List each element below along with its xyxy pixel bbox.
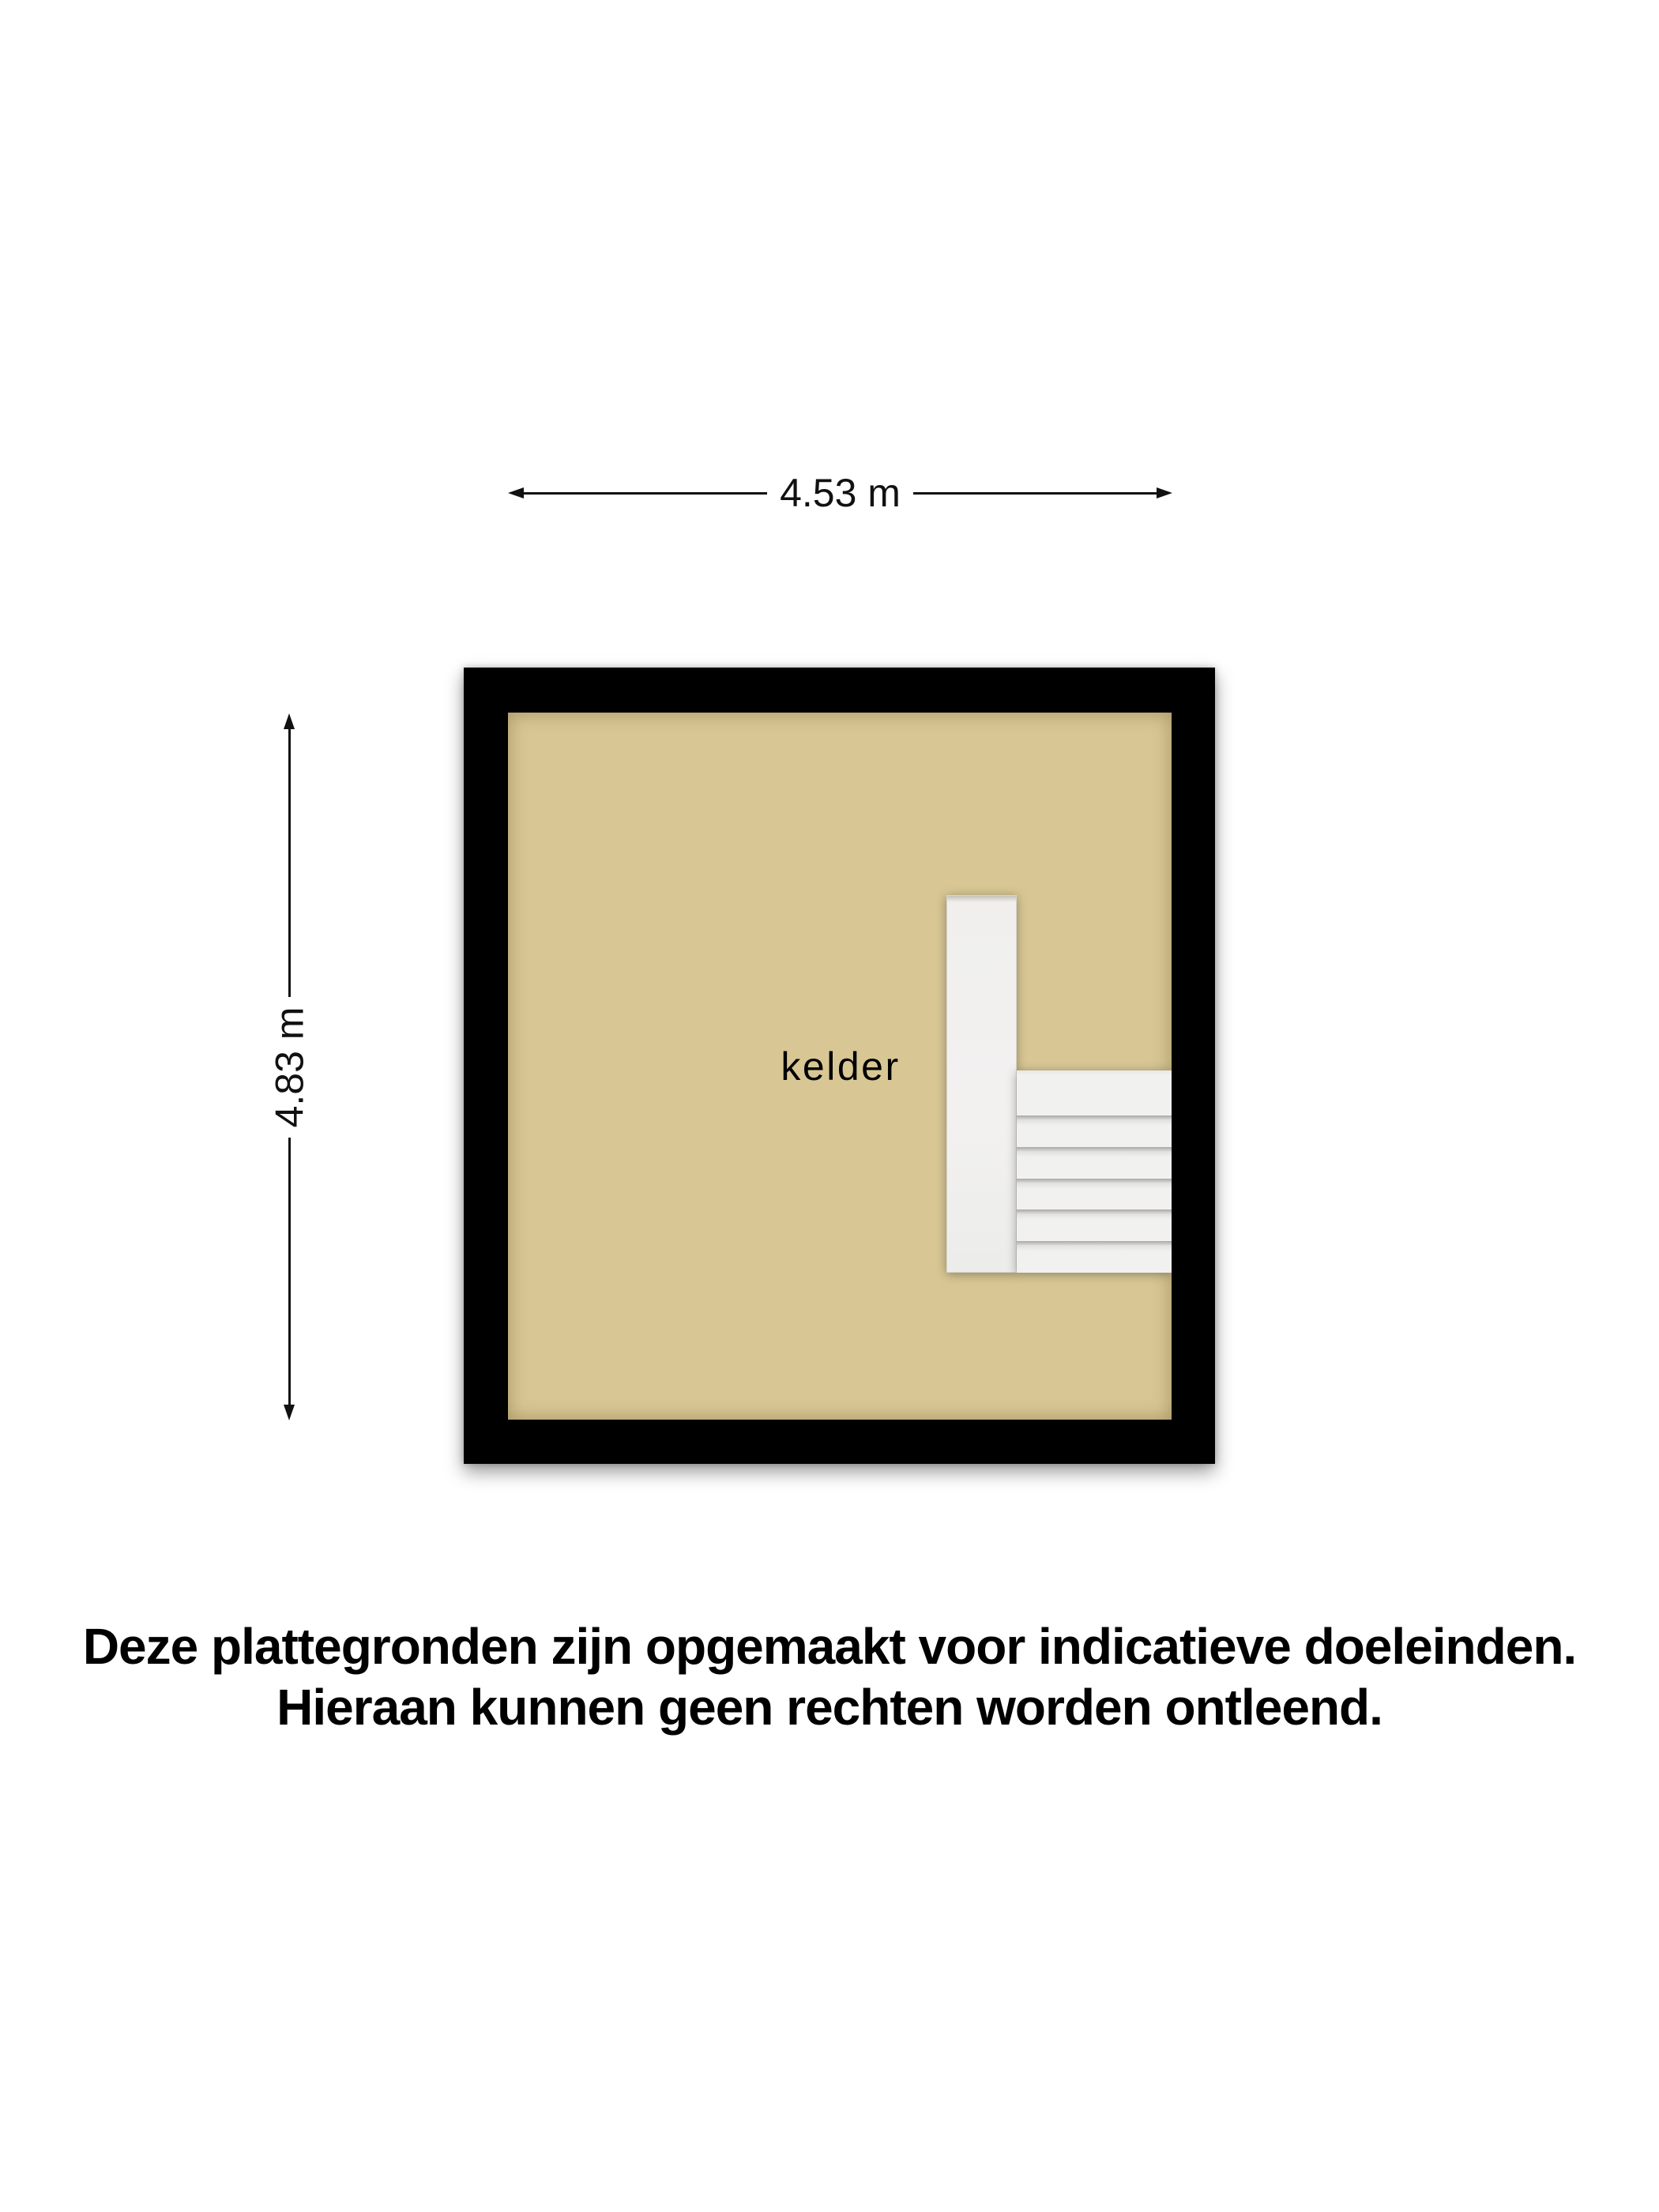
stair-landing <box>1017 1070 1172 1115</box>
width-dimension: 4.53 m <box>508 477 1172 509</box>
height-dimension: 4.83 m <box>273 713 305 1420</box>
stair-tread <box>1017 1209 1172 1241</box>
stair-tread <box>1017 1241 1172 1273</box>
dimension-line <box>524 492 767 495</box>
arrowhead-down-icon <box>284 1405 295 1420</box>
stair-tread <box>1017 1179 1172 1210</box>
arrowhead-right-icon <box>1157 487 1172 498</box>
staircase-landing-strip <box>946 895 1017 1273</box>
floorplan-page: 4.53 m 4.83 m kelder Deze plattegronden … <box>0 0 1659 2212</box>
dimension-line <box>913 492 1157 495</box>
width-dimension-label: 4.53 m <box>767 477 913 509</box>
stair-tread <box>1017 1147 1172 1179</box>
disclaimer: Deze plattegronden zijn opgemaakt voor i… <box>0 1616 1659 1738</box>
staircase-steps <box>1017 1070 1172 1273</box>
arrowhead-left-icon <box>508 487 524 498</box>
height-dimension-label: 4.83 m <box>266 1006 312 1127</box>
stair-tread <box>1017 1115 1172 1147</box>
arrowhead-up-icon <box>284 713 295 729</box>
room-label: kelder <box>781 1044 900 1089</box>
dimension-line <box>288 729 291 997</box>
dimension-line <box>288 1138 291 1405</box>
disclaimer-line-1: Deze plattegronden zijn opgemaakt voor i… <box>0 1616 1659 1677</box>
disclaimer-line-2: Hieraan kunnen geen rechten worden ontle… <box>0 1677 1659 1738</box>
height-dimension-label-wrap: 4.83 m <box>273 997 305 1138</box>
